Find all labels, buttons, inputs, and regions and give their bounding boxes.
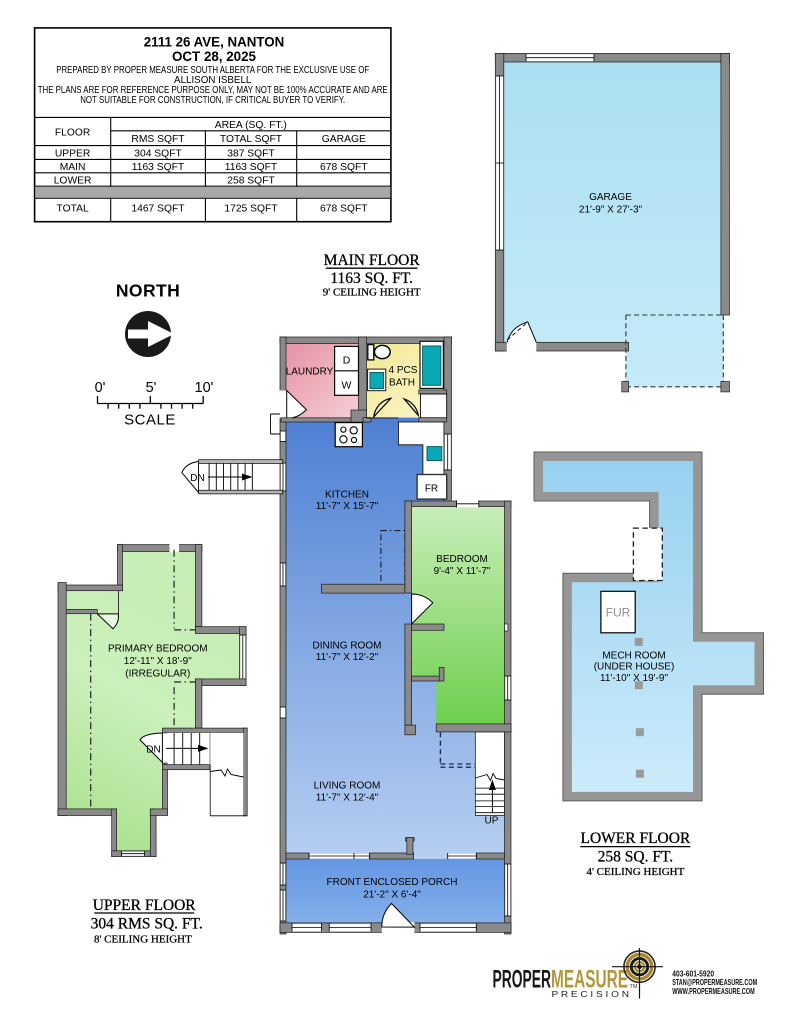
svg-text:OCT 28, 2025: OCT 28, 2025 <box>172 49 257 64</box>
svg-text:W: W <box>342 380 352 392</box>
svg-text:FR: FR <box>425 484 438 495</box>
svg-text:DN: DN <box>146 745 160 756</box>
svg-text:11'-7" X 15'-7": 11'-7" X 15'-7" <box>316 501 379 512</box>
svg-text:10': 10' <box>195 380 214 396</box>
svg-text:(UNDER HOUSE): (UNDER HOUSE) <box>594 662 675 673</box>
svg-text:MECH ROOM: MECH ROOM <box>602 651 665 662</box>
svg-text:AREA (SQ. FT.): AREA (SQ. FT.) <box>215 120 287 131</box>
svg-text:LAUNDRY: LAUNDRY <box>286 367 334 378</box>
svg-text:4' CEILING HEIGHT: 4' CEILING HEIGHT <box>586 866 684 878</box>
svg-text:FRONT ENCLOSED PORCH: FRONT ENCLOSED PORCH <box>327 877 458 888</box>
svg-text:1163 SQFT: 1163 SQFT <box>225 162 278 173</box>
svg-text:387 SQFT: 387 SQFT <box>227 149 275 160</box>
svg-text:11'-7" X 12'-4": 11'-7" X 12'-4" <box>316 793 379 804</box>
svg-text:RMS SQFT: RMS SQFT <box>131 134 185 145</box>
svg-text:FLOOR: FLOOR <box>55 128 90 139</box>
svg-text:258 SQ. FT.: 258 SQ. FT. <box>598 848 674 865</box>
svg-text:1163 SQ. FT.: 1163 SQ. FT. <box>330 270 413 287</box>
svg-text:D: D <box>343 355 351 367</box>
svg-text:5': 5' <box>146 380 157 396</box>
svg-text:4 PCS: 4 PCS <box>389 365 418 376</box>
svg-text:UP: UP <box>485 816 499 827</box>
svg-text:FUR: FUR <box>606 606 631 620</box>
svg-text:678 SQFT: 678 SQFT <box>320 162 368 173</box>
svg-text:MAIN FLOOR: MAIN FLOOR <box>324 252 421 269</box>
svg-text:(IRREGULAR): (IRREGULAR) <box>125 669 190 680</box>
svg-text:LOWER FLOOR: LOWER FLOOR <box>581 830 691 847</box>
svg-text:PROPER: PROPER <box>493 966 552 994</box>
svg-text:1163 SQFT: 1163 SQFT <box>132 162 185 173</box>
svg-text:678 SQFT: 678 SQFT <box>320 203 368 214</box>
svg-text:WWW.PROPERMEASURE.COM: WWW.PROPERMEASURE.COM <box>672 986 755 996</box>
svg-text:GARAGE: GARAGE <box>589 192 632 203</box>
svg-text:NORTH: NORTH <box>116 281 180 301</box>
svg-text:BATH: BATH <box>389 378 415 389</box>
svg-text:UPPER FLOOR: UPPER FLOOR <box>93 897 197 914</box>
svg-text:304 SQFT: 304 SQFT <box>134 149 182 160</box>
svg-text:11'-7" X 12'-2": 11'-7" X 12'-2" <box>316 652 379 663</box>
svg-text:12'-11" X 18'-9": 12'-11" X 18'-9" <box>124 656 192 667</box>
svg-text:DN: DN <box>190 473 204 484</box>
svg-text:21'-9" X 27'-3": 21'-9" X 27'-3" <box>579 205 643 216</box>
svg-text:P R E C I S I O N: P R E C I S I O N <box>552 989 630 999</box>
svg-text:SCALE: SCALE <box>124 412 176 429</box>
svg-text:LOWER: LOWER <box>54 176 92 187</box>
svg-text:TOTAL SQFT: TOTAL SQFT <box>220 134 283 145</box>
svg-text:9' CEILING HEIGHT: 9' CEILING HEIGHT <box>323 286 421 298</box>
svg-text:0': 0' <box>95 380 106 396</box>
svg-text:304 RMS SQ. FT.: 304 RMS SQ. FT. <box>91 916 203 933</box>
svg-text:MAIN: MAIN <box>60 162 86 173</box>
svg-text:KITCHEN: KITCHEN <box>325 490 369 501</box>
svg-text:258 SQFT: 258 SQFT <box>227 176 275 187</box>
svg-text:1725 SQFT: 1725 SQFT <box>224 203 278 214</box>
svg-text:1467 SQFT: 1467 SQFT <box>131 203 185 214</box>
svg-text:8' CEILING HEIGHT: 8' CEILING HEIGHT <box>94 933 192 945</box>
svg-text:LIVING ROOM: LIVING ROOM <box>314 781 381 792</box>
svg-text:TOTAL: TOTAL <box>56 203 89 214</box>
svg-text:DINING ROOM: DINING ROOM <box>313 640 382 651</box>
svg-text:BEDROOM: BEDROOM <box>436 554 488 565</box>
svg-text:GARAGE: GARAGE <box>322 134 366 145</box>
svg-text:NOT SUITABLE FOR CONSTRUCTION,: NOT SUITABLE FOR CONSTRUCTION, IF CRITIC… <box>80 95 345 106</box>
svg-text:11'-10" X 19'-9": 11'-10" X 19'-9" <box>600 673 668 684</box>
svg-text:UPPER: UPPER <box>55 149 90 160</box>
svg-text:TM: TM <box>630 984 638 990</box>
svg-text:PRIMARY BEDROOM: PRIMARY BEDROOM <box>108 644 208 655</box>
svg-text:9'-4" X 11'-7": 9'-4" X 11'-7" <box>434 566 491 577</box>
svg-text:2111 26 AVE, NANTON: 2111 26 AVE, NANTON <box>144 35 285 50</box>
svg-text:21'-2" X 6'-4": 21'-2" X 6'-4" <box>363 890 421 901</box>
